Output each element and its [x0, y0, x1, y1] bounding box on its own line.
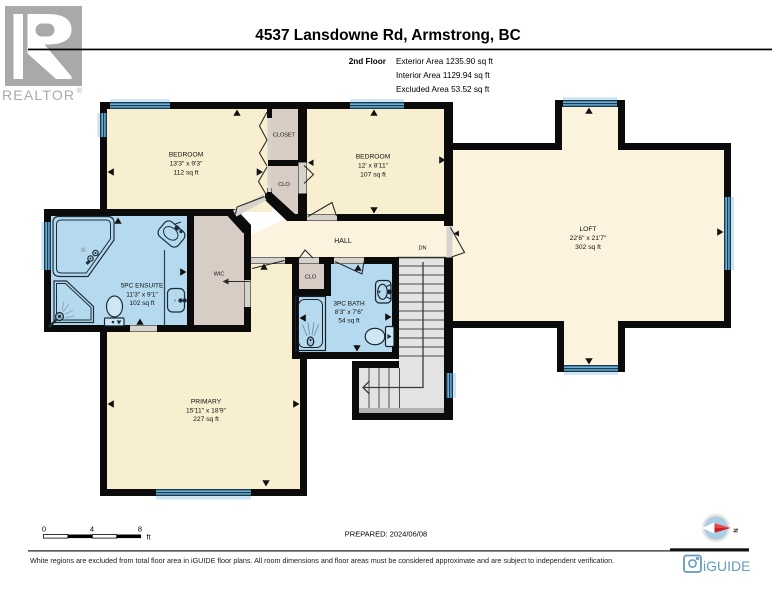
svg-text:CLO: CLO: [305, 275, 317, 281]
svg-text:2nd Floor: 2nd Floor: [349, 57, 387, 66]
svg-text:0: 0: [42, 525, 46, 534]
svg-text:5PC ENSUITE: 5PC ENSUITE: [121, 283, 164, 290]
svg-text:CLOSET: CLOSET: [273, 133, 296, 139]
svg-text:BEDROOM: BEDROOM: [356, 154, 391, 161]
svg-text:®: ®: [77, 86, 83, 95]
svg-text:Exterior Area 1235.90 sq ft: Exterior Area 1235.90 sq ft: [396, 57, 494, 66]
svg-text:iGUIDE: iGUIDE: [703, 558, 750, 574]
svg-text:13'3" x 9'3": 13'3" x 9'3": [170, 161, 204, 168]
svg-text:11'3" x 9'1": 11'3" x 9'1": [126, 292, 158, 299]
svg-text:BEDROOM: BEDROOM: [169, 152, 204, 159]
svg-text:WIC: WIC: [214, 272, 225, 278]
svg-text:8: 8: [138, 525, 142, 534]
svg-text:302 sq ft: 302 sq ft: [575, 244, 601, 251]
svg-text:4: 4: [90, 525, 94, 534]
svg-text:112 sq ft: 112 sq ft: [173, 170, 198, 177]
svg-text:PRIMARY: PRIMARY: [191, 399, 222, 406]
svg-text:PREPARED: 2024/06/08: PREPARED: 2024/06/08: [345, 530, 427, 539]
svg-text:LOFT: LOFT: [579, 226, 596, 233]
svg-text:Interior Area 1129.94 sq ft: Interior Area 1129.94 sq ft: [396, 71, 490, 80]
svg-text:8'3" x 7'6": 8'3" x 7'6": [335, 309, 364, 316]
svg-text:102 sq ft: 102 sq ft: [130, 300, 155, 307]
svg-text:REALTOR: REALTOR: [2, 87, 75, 103]
svg-text:White regions are excluded fro: White regions are excluded from total fl…: [30, 556, 614, 565]
svg-text:N: N: [732, 528, 738, 532]
svg-text:12' x 8'11": 12' x 8'11": [358, 163, 389, 170]
svg-text:227 sq ft: 227 sq ft: [193, 416, 219, 423]
svg-text:15'11" x 18'9": 15'11" x 18'9": [186, 408, 227, 415]
svg-text:22'6" x 21'7": 22'6" x 21'7": [570, 235, 607, 242]
svg-text:Excluded Area 53.52 sq ft: Excluded Area 53.52 sq ft: [396, 85, 490, 94]
svg-text:107 sq ft: 107 sq ft: [360, 172, 386, 179]
svg-text:HALL: HALL: [334, 238, 352, 245]
svg-text:3PC BATH: 3PC BATH: [333, 301, 365, 308]
svg-text:CLO: CLO: [278, 182, 290, 188]
svg-text:DN: DN: [418, 246, 426, 252]
svg-text:4537 Lansdowne Rd, Armstrong,: 4537 Lansdowne Rd, Armstrong, BC: [255, 27, 520, 44]
svg-text:54 sq ft: 54 sq ft: [338, 318, 360, 325]
